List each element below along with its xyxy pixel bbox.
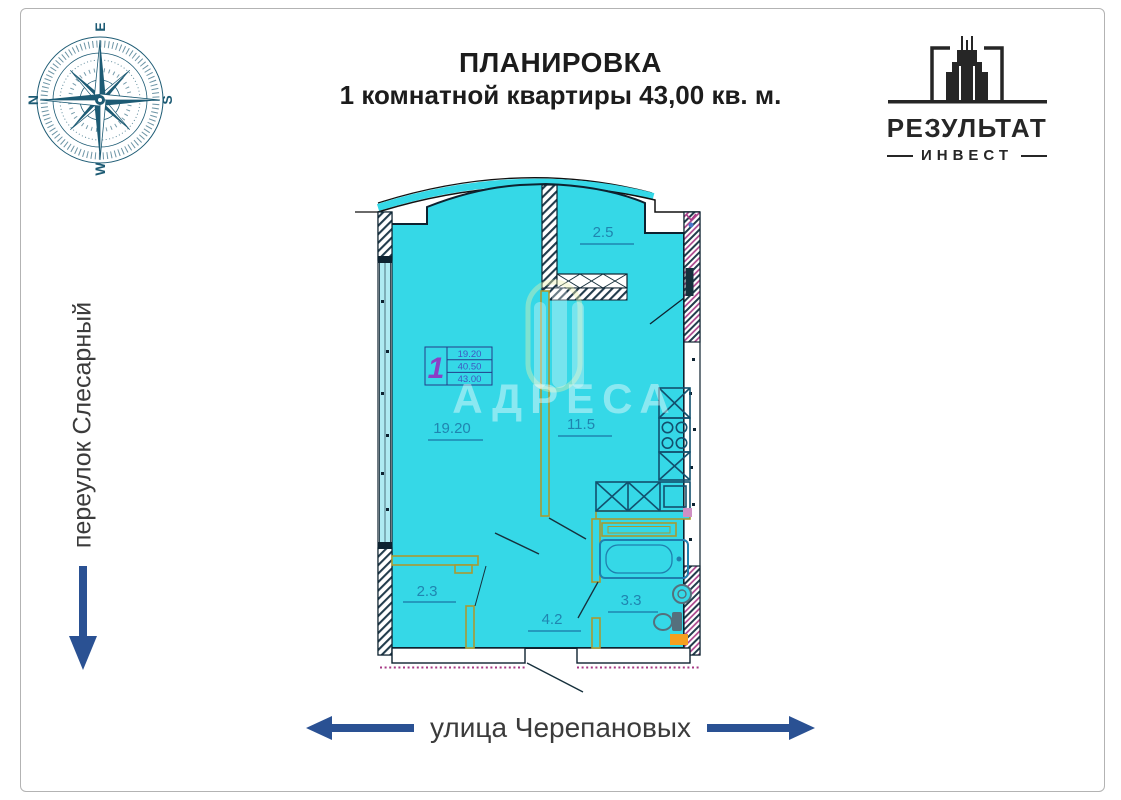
logo-subname: ИНВЕСТ	[921, 147, 1013, 164]
partition-bath-lower	[592, 618, 600, 648]
arrow-right-icon	[707, 714, 815, 742]
developer-logo: РЕЗУЛЬТАТ ИНВЕСТ	[878, 26, 1056, 164]
accent-pink	[683, 508, 692, 517]
stamp-living-area: 19.20	[458, 349, 482, 360]
logo-subname-row: ИНВЕСТ	[878, 147, 1056, 164]
wall-left	[378, 212, 392, 655]
washer	[602, 523, 676, 536]
partition-bath-upper	[592, 519, 600, 582]
logo-dash-right	[1021, 155, 1047, 157]
floor-plan: 1 19.20 40.50 43.00 АДРЕСА 19.20 11.5 2.…	[355, 160, 720, 700]
watermark-text: АДРЕСА	[452, 375, 677, 422]
accent-orange	[670, 634, 688, 645]
label-closet: 2.3	[417, 583, 438, 600]
stamp-room-count: 1	[428, 352, 445, 385]
compass-letter-top: E	[92, 22, 108, 31]
closet-door-leaf	[466, 606, 474, 648]
stamp-area: 40.50	[458, 362, 482, 373]
building-icon	[880, 26, 1055, 106]
partition-kitchen-bath	[596, 511, 690, 519]
arrow-down-icon	[66, 566, 100, 672]
entrance-door-swing	[527, 663, 583, 692]
label-living-room: 19.20	[433, 420, 471, 437]
street-label-left: переулок Слесарный	[69, 302, 98, 548]
toilet	[654, 614, 672, 630]
balcony-door-leaf	[686, 268, 694, 296]
partition-closet	[392, 556, 478, 565]
wall-bottom	[380, 648, 700, 692]
logo-name: РЕЗУЛЬТАТ	[878, 113, 1056, 144]
compass-letter-bottom: W	[92, 162, 108, 176]
label-bathroom: 3.3	[621, 592, 642, 609]
street-label-bottom-row: улица Черепановых	[0, 712, 1121, 744]
logo-dash-left	[887, 155, 913, 157]
label-hallway: 4.2	[542, 611, 563, 628]
page: E S W N ПЛАНИРОВКА 1 комнатной квартиры …	[0, 0, 1121, 800]
street-label-bottom: улица Черепановых	[430, 712, 691, 744]
label-kitchen: 11.5	[567, 416, 595, 433]
bath-sink	[673, 585, 691, 603]
arrow-left-icon	[306, 714, 414, 742]
label-balcony: 2.5	[593, 224, 614, 241]
